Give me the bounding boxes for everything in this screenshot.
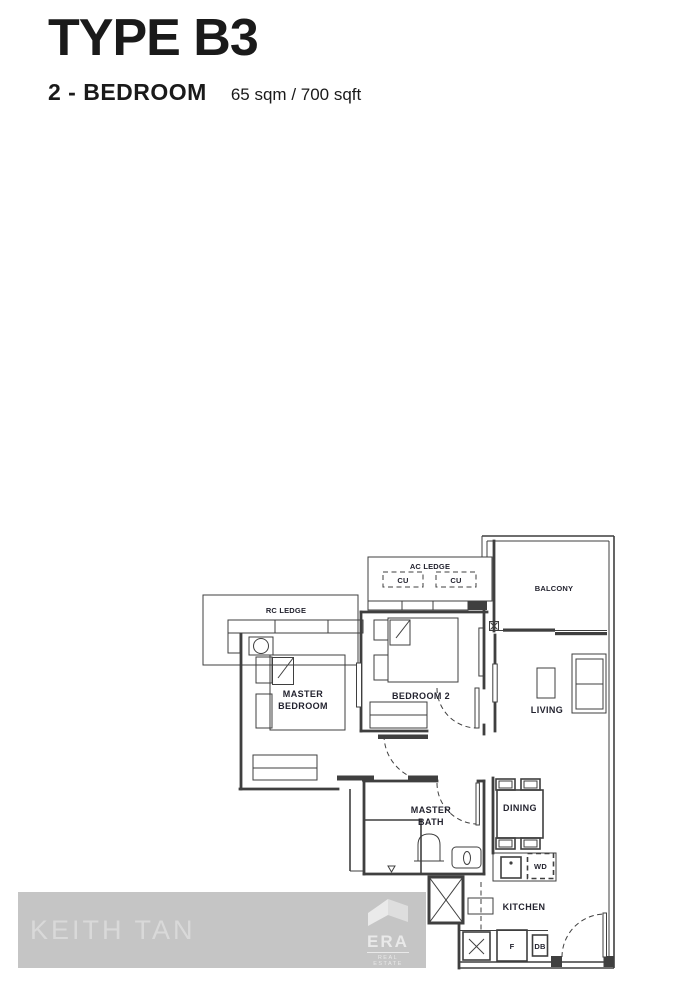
room-balcony: BALCONY xyxy=(490,541,608,635)
room-master-bath: MASTER BATH xyxy=(350,776,484,875)
bedroom2-label: BEDROOM 2 xyxy=(392,691,450,701)
coffee-table xyxy=(537,668,555,698)
sofa-icon xyxy=(572,654,606,713)
shower-marker xyxy=(388,866,395,872)
kitchen-label: KITCHEN xyxy=(503,902,546,912)
room-master-bedroom: MASTER BEDROOM xyxy=(240,634,374,789)
floorplan-page: TYPE B3 2 - BEDROOM 65 sqm / 700 sqft KE… xyxy=(0,0,685,1000)
door-swing-arc xyxy=(384,735,430,781)
cu-right-label: CU xyxy=(450,576,461,585)
door-leaf xyxy=(603,913,607,957)
fridge-label: F xyxy=(510,942,515,951)
door-leaf xyxy=(475,688,479,728)
master-bedroom-label-1: MASTER xyxy=(283,689,323,699)
rc-ledge-label: RC LEDGE xyxy=(266,606,306,615)
room-living: LIVING xyxy=(493,635,606,731)
stove-icon xyxy=(463,932,490,960)
floorplan-drawing: AC LEDGE CU CU BALCONY RC LEDGE xyxy=(0,0,685,1000)
dining-set-icon xyxy=(496,779,543,849)
door-swing-arc xyxy=(562,914,605,957)
window-band xyxy=(368,601,468,610)
balcony-label: BALCONY xyxy=(535,584,573,593)
cu-left-label: CU xyxy=(397,576,408,585)
sliding-door-panel xyxy=(378,735,428,740)
room-bedroom2: BEDROOM 2 xyxy=(357,610,488,781)
window-band xyxy=(228,620,363,633)
master-bath-label-1: MASTER xyxy=(411,805,451,815)
dining-label: DINING xyxy=(503,803,537,813)
toilet-icon xyxy=(414,834,444,861)
glass-panel xyxy=(493,664,497,702)
room-kitchen: WD F DB KITCHEN xyxy=(429,853,614,968)
master-bath-label-2: BATH xyxy=(418,817,444,827)
side-table xyxy=(249,637,273,655)
glass-panel xyxy=(357,663,362,707)
household-shelter xyxy=(429,877,463,923)
entry-door xyxy=(551,913,614,967)
room-ac-ledge: AC LEDGE CU CU xyxy=(368,557,492,610)
sliding-door-panel xyxy=(555,632,607,635)
living-label: LIVING xyxy=(531,705,563,715)
sliding-door-panel xyxy=(503,629,555,632)
bed-icon xyxy=(374,618,458,682)
door-leaf xyxy=(476,783,479,825)
vanity-sink-icon xyxy=(452,847,481,868)
kitchen-sink-icon xyxy=(501,857,521,878)
master-bedroom-label-2: BEDROOM xyxy=(278,701,328,711)
sliding-door-panel xyxy=(408,776,438,781)
room-dining: DINING xyxy=(493,778,543,853)
glass-panel xyxy=(479,628,483,676)
db-label: DB xyxy=(534,942,546,951)
wd-label: WD xyxy=(534,862,547,871)
ac-ledge-label: AC LEDGE xyxy=(410,562,450,571)
